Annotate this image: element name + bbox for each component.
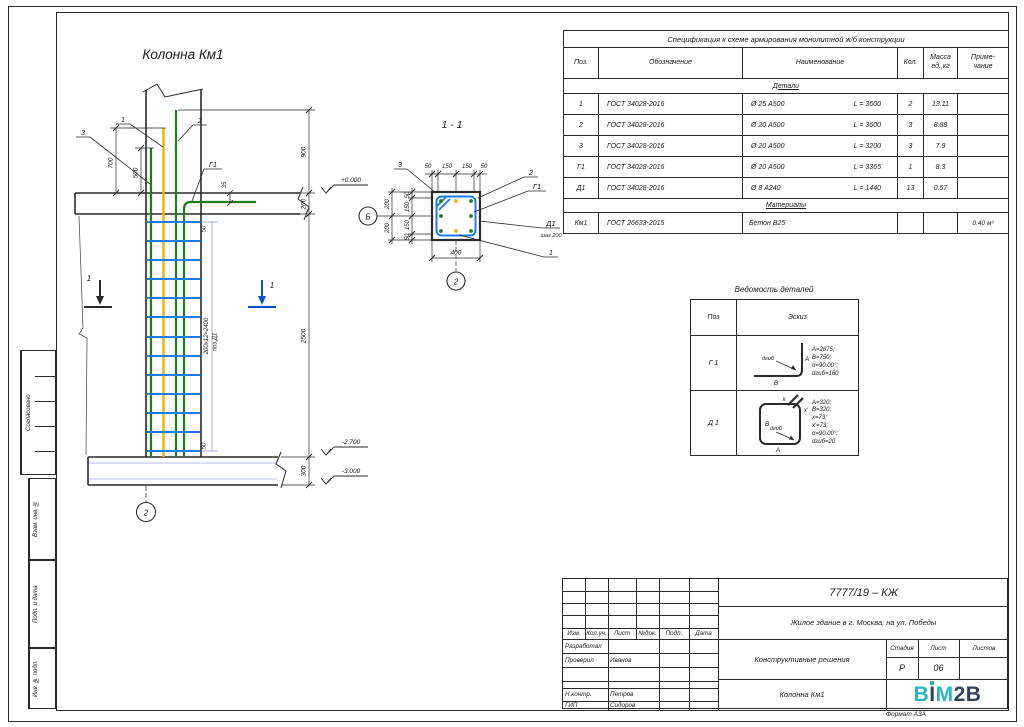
tb-role-developed: Разработал	[563, 639, 610, 653]
spec-col-qty: Кол.	[898, 48, 924, 79]
tb-drawing-name: Колонна Км1	[718, 679, 886, 710]
g1-label-a: A	[804, 356, 809, 363]
cell-name: Ø 20 А500L = 3600	[743, 115, 898, 136]
dim-200: 200	[301, 198, 308, 210]
cell-pos: Г1	[564, 157, 599, 178]
cell-pos: 3	[564, 136, 599, 157]
spec-row-material: Км1 ГОСТ 26633-2015 Бетон В25 0.40 м³	[564, 213, 1009, 234]
drawing-sheet: Колонна Км1 700 500	[0, 0, 1024, 727]
dim-700: 700	[108, 157, 115, 168]
sec-dim-left-inner-0: 50	[405, 191, 411, 198]
tb-col-izm: Изм.	[563, 628, 585, 639]
spec-title: Спецификация к схеме армирования монолит…	[564, 31, 1009, 48]
g1-sketch: A B dгиб	[738, 337, 812, 389]
vedomost-row-d1: Д 1 x x' B dгиб A A=320; B=320; x=73; x'	[691, 391, 859, 456]
stamp-inv: Инв. № подл.	[28, 648, 56, 709]
cell-pos: 1	[564, 94, 599, 115]
cut-label-right: 1	[270, 281, 274, 290]
tb-stage-label: Стадия	[886, 639, 918, 657]
cell-doc: ГОСТ 26633-2015	[599, 213, 743, 234]
vedomost-table: Поз Эскиз Г 1 A B dгиб A=2675; B=750; α=…	[690, 299, 859, 456]
tb-col-ndok: №док.	[636, 628, 659, 639]
cell-qty: 3	[898, 136, 924, 157]
spec-row: 3 ГОСТ 34028-2016 Ø 20 А500L = 3200 3 7.…	[564, 136, 1009, 157]
spec-col-note: Приме- чание	[958, 48, 1009, 79]
spec-col-mass: Масса ед.,кг	[924, 48, 958, 79]
cell-doc: ГОСТ 34028-2016	[599, 178, 743, 199]
g1-params: A=2675; B=750; α=90.00°; dгиб=160	[812, 347, 839, 378]
ved-col-sketch: Эскиз	[737, 300, 859, 336]
stamp-podp-label: Подп. и дата	[29, 561, 42, 647]
sec-dim-left-outer-0: 200	[385, 198, 391, 210]
spec-col-pos: Поз.	[564, 48, 599, 79]
section-cut-mark-left: 1	[84, 274, 112, 307]
stamp-inv-label: Инв. № подл.	[29, 649, 42, 708]
cell-name: Ø 20 А500L = 3365	[743, 157, 898, 178]
sec-label-2: 2	[528, 168, 534, 177]
cell-pos: Км1	[564, 213, 599, 234]
spec-row: Д1 ГОСТ 34028-2016 Ø 8 А240L = 1440 13 0…	[564, 178, 1009, 199]
elevation-view: Колонна Км1 700 500	[75, 47, 368, 522]
tb-sheets-value	[959, 657, 1009, 679]
elevation-title: Колонна Км1	[142, 47, 223, 62]
sec-dim-top-0: 50	[425, 164, 432, 170]
d1-params: A=320; B=320; x=73; x'=73; α=90.00°; dги…	[812, 400, 838, 447]
stamp-vzam-label: Взам. инв. №	[29, 479, 42, 559]
vedomost-title: Ведомость деталей	[690, 285, 858, 294]
tb-name-gip: Сидоров	[608, 701, 661, 710]
elev-label-3: 3	[81, 128, 86, 137]
cell-name: Ø 20 А500L = 3200	[743, 136, 898, 157]
spec-section-details: Детали	[564, 79, 1009, 94]
stirrup-pos-note: поз.Д1	[213, 333, 219, 352]
cell-sketch: A B dгиб A=2675; B=750; α=90.00°; dгиб=1…	[737, 336, 859, 391]
tb-col-koluch: Кол.уч.	[585, 628, 608, 639]
cell-qty: 1	[898, 157, 924, 178]
cell-mass: 8.88	[924, 115, 958, 136]
spec-row: Г1 ГОСТ 34028-2016 Ø 20 А500L = 3365 1 8…	[564, 157, 1009, 178]
g1-label-b: B	[774, 380, 779, 387]
tb-name-checked: Иванов	[608, 653, 661, 667]
d1-label-x: x	[782, 397, 787, 403]
sec-label-step: шаг 200	[540, 233, 562, 239]
sec-dim-top-1: 150	[442, 164, 453, 170]
cell-mass: 7.9	[924, 136, 958, 157]
tb-doc-type: Конструктивные решения	[718, 639, 886, 679]
tb-sheet-label: Лист	[918, 639, 959, 657]
tb-name-developed	[608, 639, 661, 653]
sec-dim-left-inner-2: 150	[405, 219, 411, 230]
dim-300: 300	[301, 465, 308, 476]
tb-role-ncontr: Н.контр.	[563, 688, 610, 701]
tb-stage-value: Р	[886, 657, 918, 679]
cell-sketch: x x' B dгиб A A=320; B=320; x=73; x'=73;…	[737, 391, 859, 456]
sec-label-d1: Д1	[545, 219, 555, 228]
sec-dim-left-inner-1: 150	[405, 201, 411, 212]
tb-role-gip: ГИП	[563, 701, 610, 710]
tb-col-data: Дата	[689, 628, 718, 639]
title-block: Изм. Кол.уч. Лист №док. Подп. Дата Разра…	[562, 578, 1008, 709]
axis-2-sec: 2	[453, 278, 459, 287]
tb-col-podp: Подп.	[659, 628, 689, 639]
cell-doc: ГОСТ 34028-2016	[599, 136, 743, 157]
axis-b-sec: Б	[365, 213, 370, 222]
cell-qty	[898, 213, 924, 234]
cell-pos: Д 1	[691, 391, 737, 456]
stirrups-elev	[147, 222, 200, 451]
elev-label-1: 1	[121, 115, 125, 124]
cell-note: 0.40 м³	[958, 213, 1009, 234]
tb-col-list: Лист	[608, 628, 636, 639]
d1-label-a: A	[775, 447, 780, 454]
elev-label-2: 2	[197, 116, 203, 125]
stamp-soglasovano-label: Согласовано	[21, 351, 36, 474]
level-m2700: -2.700	[342, 439, 361, 446]
cell-pos: Д1	[564, 178, 599, 199]
cell-mass: 13.11	[924, 94, 958, 115]
spec-row: 1 ГОСТ 34028-2016 Ø 25 А500L = 3600 2 13…	[564, 94, 1009, 115]
sec-dim-left-outer-1: 200	[385, 222, 391, 234]
stirrup-spacing-note: 200х12=2400	[204, 317, 210, 355]
tb-sheets-label: Листов	[959, 639, 1009, 657]
tb-sheet-value: 06	[918, 657, 959, 679]
cell-qty: 13	[898, 178, 924, 199]
elev-label-g1: Г1	[209, 160, 217, 169]
dim-50-top: 50	[202, 225, 208, 232]
dim-900: 900	[301, 146, 308, 157]
cell-note	[958, 94, 1009, 115]
section-title: 1 - 1	[441, 119, 462, 131]
tb-document-code: 7777/19 – КЖ	[718, 579, 1009, 606]
vedomost-row-g1: Г 1 A B dгиб A=2675; B=750; α=90.00°; dг…	[691, 336, 859, 391]
cell-name: Бетон В25	[743, 213, 898, 234]
dim-50-bottom: 50	[202, 442, 208, 449]
tb-object-name: Жилое здание в г. Москва, на ул. Победы	[718, 606, 1009, 639]
spec-col-name: Наименование	[743, 48, 898, 79]
cell-note	[958, 178, 1009, 199]
cell-doc: ГОСТ 34028-2016	[599, 115, 743, 136]
cell-mass: 8.3	[924, 157, 958, 178]
tb-role-checked: Проверил	[563, 653, 610, 667]
stamp-vzam: Взам. инв. №	[28, 478, 56, 560]
dim-2500: 2500	[301, 328, 308, 344]
cell-note	[958, 157, 1009, 178]
spec-col-doc: Обозначение	[599, 48, 743, 79]
bim2b-logo: BIM2B	[886, 679, 1009, 710]
cell-name: Ø 25 А500L = 3600	[743, 94, 898, 115]
cell-mass	[924, 213, 958, 234]
level-0000: +0.000	[341, 177, 361, 184]
cell-mass: 0.57	[924, 178, 958, 199]
cell-note	[958, 115, 1009, 136]
axis-2-elev: 2	[143, 509, 149, 518]
sec-label-3: 3	[398, 160, 403, 169]
cut-label-left: 1	[87, 274, 91, 283]
cell-pos: Г 1	[691, 336, 737, 391]
d1-label-d: dгиб	[770, 426, 783, 432]
sec-dim-top-3: 50	[481, 164, 488, 170]
g1-label-d: dгиб	[762, 356, 775, 362]
section-view: 1 - 1 50 150 150 50 50 150 150 50	[359, 119, 562, 290]
sec-label-g1: Г1	[533, 182, 541, 191]
spec-row: 2 ГОСТ 34028-2016 Ø 20 А500L = 3600 3 8.…	[564, 115, 1009, 136]
stamp-soglasovano: Согласовано	[20, 350, 56, 475]
spec-table: Спецификация к схеме армирования монолит…	[563, 30, 1009, 234]
stamp-podp: Подп. и дата	[28, 560, 56, 648]
cell-qty: 2	[898, 94, 924, 115]
sec-dim-top-2: 150	[462, 164, 473, 170]
sec-dim-left-inner-3: 50	[405, 233, 411, 240]
cell-doc: ГОСТ 34028-2016	[599, 94, 743, 115]
cell-doc: ГОСТ 34028-2016	[599, 157, 743, 178]
ved-col-pos: Поз	[691, 300, 737, 336]
sec-label-1: 1	[549, 248, 553, 257]
cell-note	[958, 136, 1009, 157]
cell-pos: 2	[564, 115, 599, 136]
spec-section-materials: Материалы	[564, 199, 1009, 213]
d1-sketch: x x' B dгиб A	[738, 392, 812, 454]
dim-35: 35	[222, 181, 228, 188]
level-m3000: -3.000	[342, 468, 361, 475]
tb-name-ncontr: Петров	[608, 688, 661, 701]
section-cut-mark-right: 1	[248, 280, 276, 307]
cell-qty: 3	[898, 115, 924, 136]
d1-label-x2: x'	[803, 408, 809, 414]
cell-name: Ø 8 А240L = 1440	[743, 178, 898, 199]
format-label: Формат А3А	[886, 711, 926, 718]
